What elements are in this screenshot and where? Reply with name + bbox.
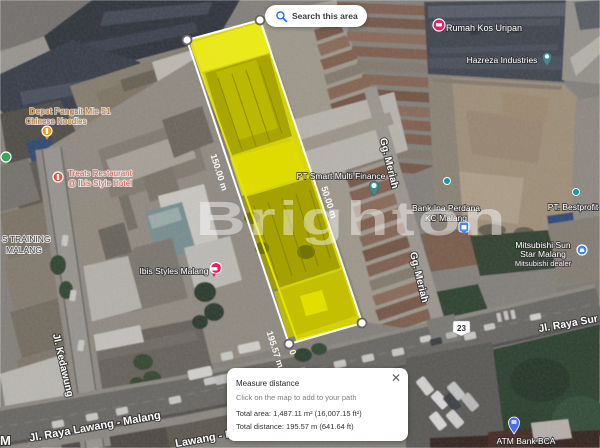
svg-text:Brighton: Brighton bbox=[195, 192, 508, 246]
svg-text:Hazreza Industries: Hazreza Industries bbox=[467, 55, 538, 65]
svg-text:Star Malang: Star Malang bbox=[520, 249, 566, 259]
svg-text:Chinese Noodles: Chinese Noodles bbox=[26, 117, 87, 126]
svg-text:M: M bbox=[0, 433, 11, 448]
svg-text:PT. Bestprofit: PT. Bestprofit bbox=[548, 202, 599, 212]
svg-text:Treats Restaurant: Treats Restaurant bbox=[68, 169, 133, 178]
svg-text:Rumah Kos Uripan: Rumah Kos Uripan bbox=[446, 23, 522, 33]
svg-text:PT Smart Multi Finance: PT Smart Multi Finance bbox=[297, 171, 386, 181]
svg-text:S TRAINING: S TRAINING bbox=[2, 234, 51, 244]
svg-text:Depot Pangsit Mie 51: Depot Pangsit Mie 51 bbox=[29, 106, 111, 116]
svg-text:Mitsubishi dealer: Mitsubishi dealer bbox=[515, 259, 572, 268]
svg-text:Ibis Styles Malang: Ibis Styles Malang bbox=[140, 266, 209, 276]
svg-text:ATM Bank BCA: ATM Bank BCA bbox=[497, 436, 556, 446]
svg-text:MALANG: MALANG bbox=[6, 245, 42, 255]
svg-text:@ Ibis Style Hotel: @ Ibis Style Hotel bbox=[68, 179, 132, 188]
svg-text:23: 23 bbox=[457, 324, 466, 333]
